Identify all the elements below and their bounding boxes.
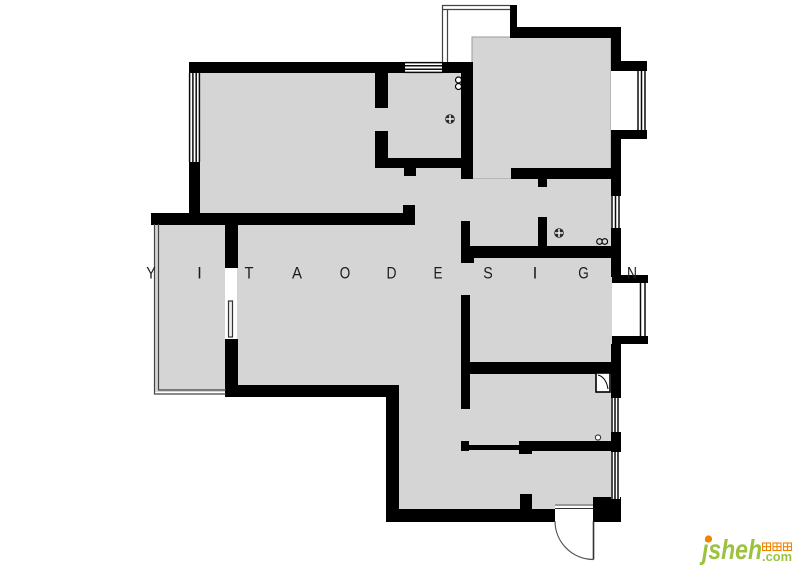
svg-text:A: A bbox=[292, 264, 303, 283]
svg-text:O: O bbox=[340, 264, 351, 283]
svg-text:G: G bbox=[578, 264, 589, 283]
svg-text:Y: Y bbox=[146, 264, 156, 283]
svg-text:N: N bbox=[627, 264, 637, 283]
svg-text:.com: .com bbox=[762, 549, 792, 564]
svg-text:S: S bbox=[483, 264, 493, 283]
svg-text:I: I bbox=[197, 264, 202, 283]
svg-text:D: D bbox=[387, 264, 397, 283]
svg-text:I: I bbox=[533, 264, 538, 283]
svg-text:E: E bbox=[434, 264, 443, 283]
svg-text:T: T bbox=[245, 264, 254, 283]
